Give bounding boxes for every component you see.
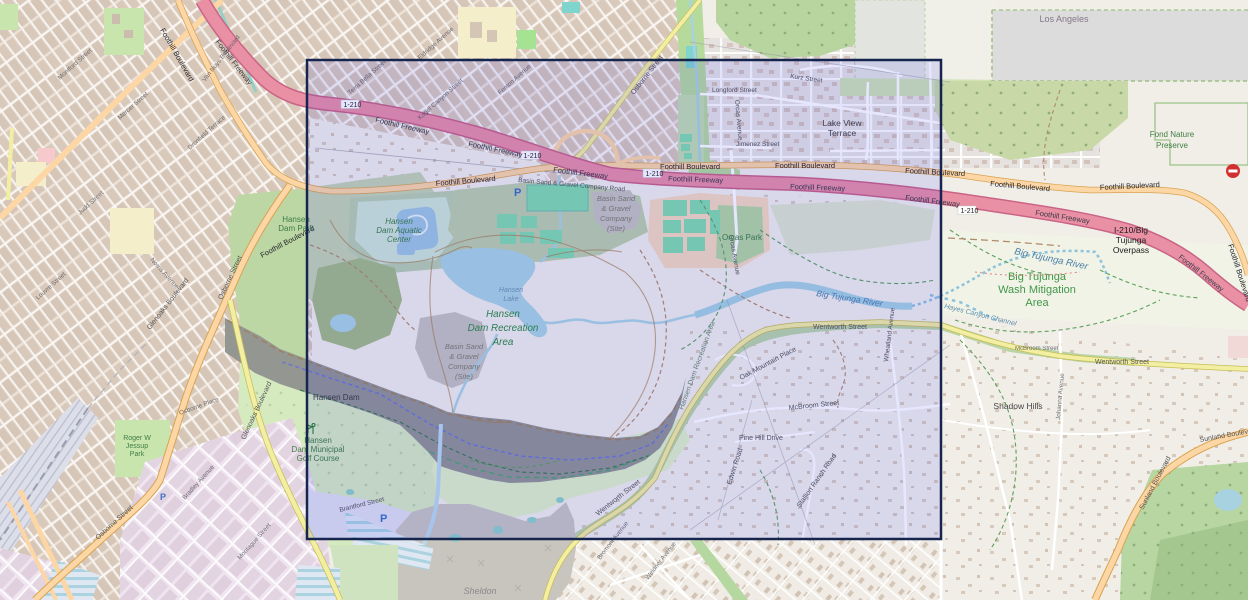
svg-text:McBroom Street: McBroom Street: [1015, 346, 1059, 352]
svg-text:Area: Area: [1025, 297, 1049, 309]
svg-text:Hansen: Hansen: [282, 215, 310, 224]
svg-text:Park: Park: [130, 451, 145, 458]
svg-text:Wentworth Street: Wentworth Street: [1095, 359, 1149, 366]
svg-text:I-210/Big: I-210/Big: [1114, 225, 1148, 235]
svg-text:Tujunga: Tujunga: [1116, 235, 1147, 245]
svg-text:Preserve: Preserve: [1156, 141, 1189, 150]
svg-text:Sheldon: Sheldon: [463, 586, 496, 596]
svg-text:Jessup: Jessup: [126, 443, 148, 450]
svg-text:1-210: 1-210: [961, 208, 979, 215]
svg-text:Shadow Hills: Shadow Hills: [993, 401, 1042, 411]
svg-text:Fond Nature: Fond Nature: [1150, 130, 1195, 139]
svg-text:Overpass: Overpass: [1113, 245, 1149, 255]
svg-text:Wash Mitigation: Wash Mitigation: [998, 284, 1076, 296]
svg-text:Los Angeles: Los Angeles: [1039, 14, 1089, 24]
svg-text:Roger W: Roger W: [123, 435, 151, 442]
svg-text:P: P: [160, 492, 166, 502]
svg-text:Big Tujunga: Big Tujunga: [1008, 271, 1067, 283]
